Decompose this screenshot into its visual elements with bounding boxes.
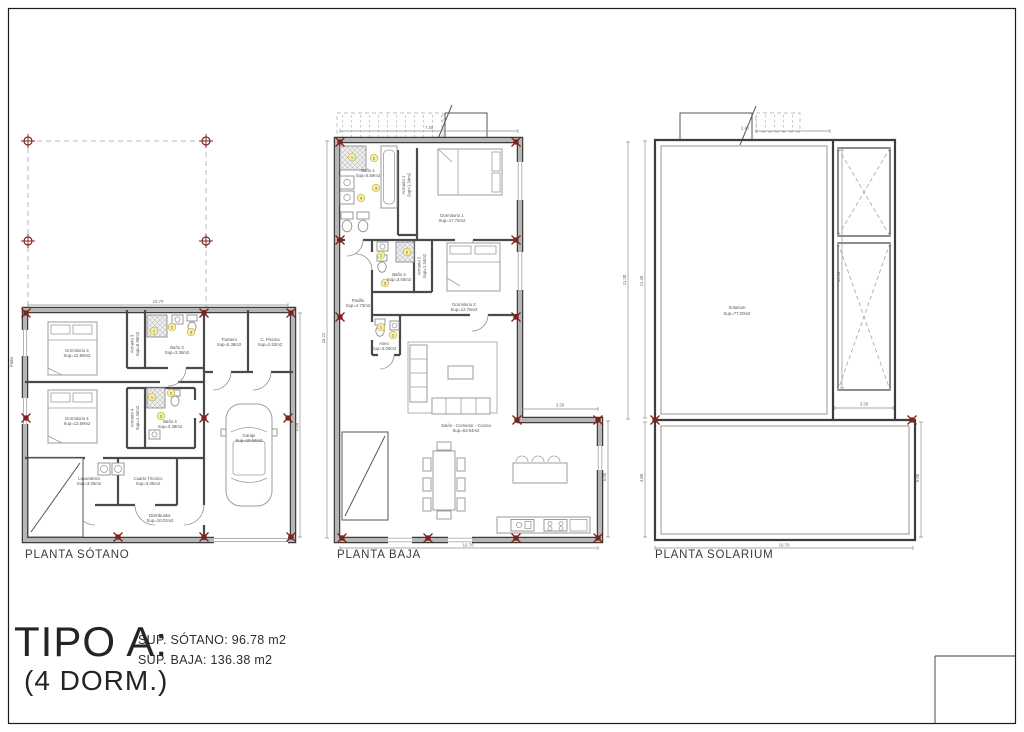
dim-label: 4.80 xyxy=(639,473,644,482)
column-grid-outline xyxy=(28,141,206,311)
dim-label: 3.30 xyxy=(860,402,869,407)
surface-sotano: SUP. SÓTANO: 96.78 m2 xyxy=(138,632,286,647)
room-label: Solarium xyxy=(729,305,746,310)
bed xyxy=(447,243,500,291)
column-marker-icon xyxy=(199,134,213,148)
room-area: Sup=3.38m2 xyxy=(158,424,183,429)
solarium-outer-wall xyxy=(655,140,915,540)
room-area: Sup=10.02m2 xyxy=(147,518,174,523)
dim-line xyxy=(523,407,598,411)
coffee-table xyxy=(448,366,473,379)
room-area: Sup=1.34m2 xyxy=(135,405,140,430)
kitchen-counter xyxy=(497,517,590,533)
column-marker-icon xyxy=(21,134,35,148)
bed xyxy=(438,149,502,195)
plan-sotano: 1 2 3 1 2 3 10.70 9.04 Dormitorio 3 Sup=… xyxy=(9,134,302,561)
title-block-divider xyxy=(935,656,1016,723)
room-area: Sup=12.58m2 xyxy=(64,353,91,358)
plan-title-sotano: PLANTA SÓTANO xyxy=(25,548,130,561)
terrace-inner-line xyxy=(661,426,909,534)
room-area: Sup=3.60m2 xyxy=(387,277,412,282)
sofa-set xyxy=(408,342,497,414)
sheet-border xyxy=(9,9,1016,724)
sotano-stairs xyxy=(28,458,83,537)
plan-title-baja: PLANTA BAJA xyxy=(337,549,421,561)
dim-label: 10.70 xyxy=(463,543,474,548)
kitchen-island xyxy=(513,456,567,483)
room-area: Sup=19.66m2 xyxy=(236,438,263,443)
solarium-inner-line xyxy=(661,146,827,414)
title-block: TIPO A: (4 DORM.) SUP. SÓTANO: 96.78 m2 … xyxy=(14,618,286,696)
room-area: Sup=3.36m2 xyxy=(165,350,190,355)
dim-label: 10.70 xyxy=(779,543,790,548)
pergola-panels xyxy=(838,148,890,390)
room-area: Sup=77.00m2 xyxy=(724,311,751,316)
room-area: Sup=17.76m2 xyxy=(439,218,466,223)
room-label: Armario 2 xyxy=(417,256,422,275)
baja-stairs xyxy=(342,432,388,520)
laundry-appliances xyxy=(98,463,124,475)
plan-solarium: 2.40 11.40 4.80 11.30 3.30 5.00 10.70 xyxy=(639,106,923,561)
room-area: Sup=3.05m2 xyxy=(136,481,161,486)
dim-label: 2.40 xyxy=(741,126,750,131)
room-area: Sup=1.34m2 xyxy=(407,172,412,197)
dim-label: 5.00 xyxy=(915,473,920,482)
room-area: Sup=6.59m2 xyxy=(356,173,381,178)
type-subtitle: (4 DORM.) xyxy=(24,665,168,696)
room-area: Sup=1.34m2 xyxy=(422,253,427,278)
dim-label: 11.30 xyxy=(622,274,627,285)
dim-label: 11.30 xyxy=(836,271,841,282)
dim-label: 11.40 xyxy=(639,275,644,286)
baja-top-stairs xyxy=(337,105,487,141)
room-label: Armario 3 xyxy=(130,334,135,353)
room-label: Armario 1 xyxy=(401,175,406,194)
room-area: Sup=2.52m2 xyxy=(258,342,283,347)
room-area: Sup=0.96m2 xyxy=(135,331,140,356)
dim-label: 3.30 xyxy=(556,403,565,408)
dim-label: 5.00 xyxy=(602,472,607,481)
car xyxy=(221,404,277,506)
dim-label: 7.40 xyxy=(425,125,434,130)
dim-label: 10.70 xyxy=(153,299,164,304)
column-marker-icon xyxy=(199,234,213,248)
dim-label: 9.04 xyxy=(295,422,300,431)
dim-label: 16.22 xyxy=(321,332,326,343)
plan-baja: 7.40 xyxy=(321,105,630,561)
room-area: Sup=3.00m2 xyxy=(372,346,397,351)
plan-title-solarium: PLANTA SOLARIUM xyxy=(655,549,774,561)
room-area: Sup=63.94m2 xyxy=(453,428,480,433)
floorplan-drawing: 1 2 3 1 2 3 10.70 9.04 Dormitorio 3 Sup=… xyxy=(0,0,1024,732)
room-label: Armario 4 xyxy=(130,408,135,427)
dim-line xyxy=(835,406,893,410)
room-area: Sup=5.38m2 xyxy=(217,342,242,347)
dining-table xyxy=(423,442,465,519)
surface-baja: SUP. BAJA: 136.38 m2 xyxy=(138,653,272,667)
drawing-sheet: 1 2 3 1 2 3 10.70 9.04 Dormitorio 3 Sup=… xyxy=(0,0,1024,732)
column-marker-icon xyxy=(21,234,35,248)
room-area: Sup=12.69m2 xyxy=(64,421,91,426)
room-label: Patio xyxy=(9,356,14,366)
dim-line xyxy=(840,150,844,388)
room-area: Sup=12.76m2 xyxy=(451,307,478,312)
room-area: Sup=4.73m2 xyxy=(346,303,371,308)
room-area: Sup=3.05m2 xyxy=(77,481,102,486)
